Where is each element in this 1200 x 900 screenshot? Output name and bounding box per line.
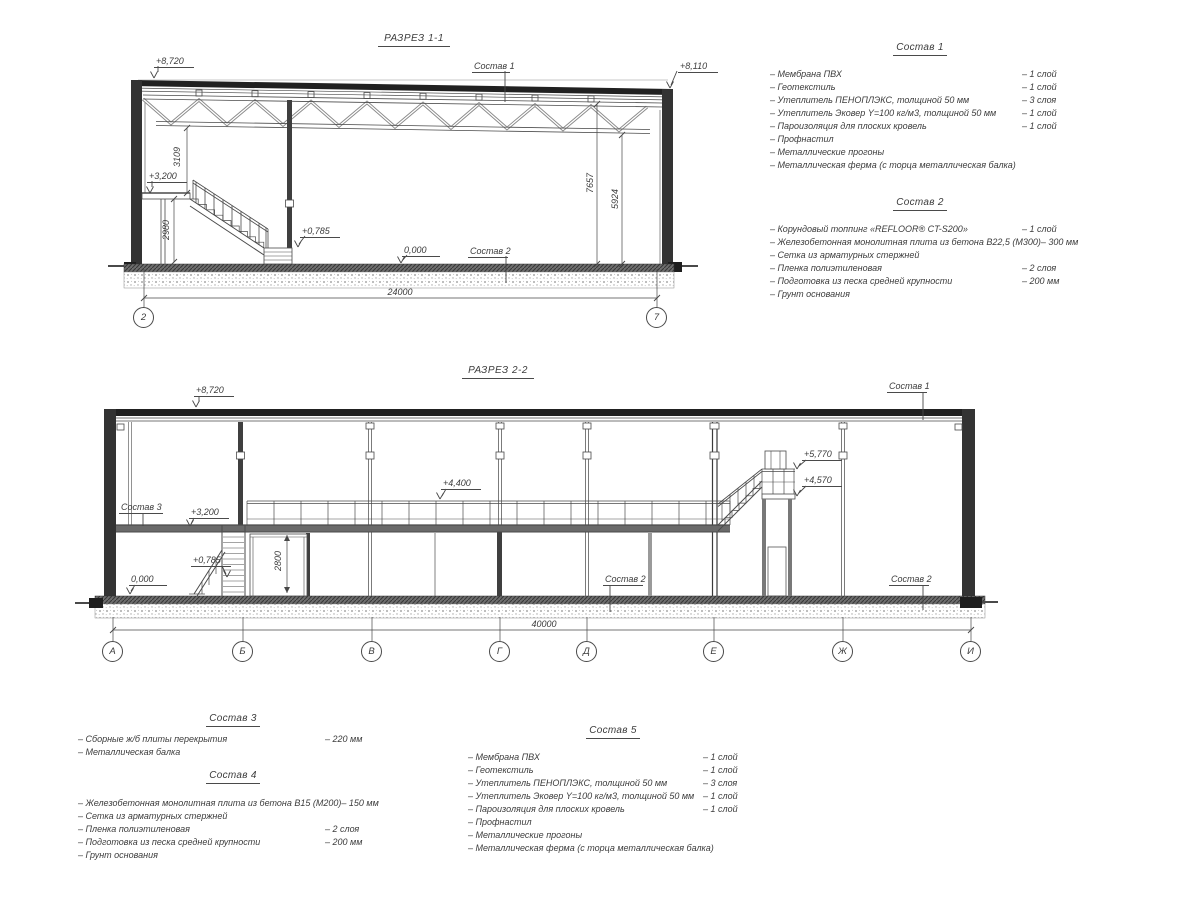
axis-bubble-zh: Ж	[832, 641, 853, 662]
legend-title: Состав 2	[770, 197, 1070, 208]
elevation-mark-0000-s2: 0,000	[129, 574, 167, 586]
sostav3-callout-s2: Состав 3	[119, 502, 163, 514]
axis-bubble-2: 2	[133, 307, 154, 328]
elevation-mark-5770-s2: +5,770	[802, 449, 842, 461]
legend-item: – Грунт основания	[78, 849, 388, 862]
legend-title: Состав 1	[770, 42, 1070, 53]
legend-sostav-1: Состав 1 – Мембрана ПВХ– 1 слой – Геотек…	[770, 42, 1070, 172]
elevation-mark-8110-s1: +8,110	[678, 61, 718, 73]
sostav2-callout-s1: Состав 2	[468, 246, 508, 258]
axis-bubble-b: Б	[232, 641, 253, 662]
dim-2800: 2800	[273, 551, 283, 571]
legend-item: – Грунт основания	[770, 288, 1070, 301]
legend-item: – Металлическая ферма (с торца металличе…	[468, 842, 758, 855]
legend-item: – Металлическая балка	[78, 746, 388, 759]
legend-item: – Утеплитель Эковер Y=100 кг/м3, толщино…	[468, 790, 758, 803]
legend-item: – Металлические прогоны	[770, 146, 1070, 159]
elevation-mark-8720-s1: +8,720	[154, 56, 194, 68]
legend-item: – Утеплитель Эковер Y=100 кг/м3, толщино…	[770, 107, 1070, 120]
legend-item: – Профнастил	[770, 133, 1070, 146]
legend-item: – Утеплитель ПЕНОПЛЭКС, толщиной 50 мм– …	[468, 777, 758, 790]
dim-7657: 7657	[585, 173, 595, 193]
sostav2-callout-right-s2: Состав 2	[889, 574, 929, 586]
legend-item: – Железобетонная монолитная плита из бет…	[78, 797, 388, 810]
dim-3109: 3109	[172, 147, 182, 167]
legend-item: – Сетка из арматурных стержней	[770, 249, 1070, 262]
legend-item: – Геотекстиль– 1 слой	[770, 81, 1070, 94]
legend-item: – Утеплитель ПЕНОПЛЭКС, толщиной 50 мм– …	[770, 94, 1070, 107]
legend-sostav-4: Состав 4 – Железобетонная монолитная пли…	[78, 770, 388, 862]
elevation-mark-3200-s2: +3,200	[189, 507, 229, 519]
axis-bubble-7: 7	[646, 307, 667, 328]
dim-5924: 5924	[610, 189, 620, 209]
legend-item: – Профнастил	[468, 816, 758, 829]
elevation-mark-0785-s1: +0,785	[300, 226, 340, 238]
legend-item: – Пленка полиэтиленовая– 2 слоя	[770, 262, 1070, 275]
dim-24000: 24000	[375, 287, 425, 297]
drawing-canvas: РАЗРЕЗ 1-1 +8,720 Состав 1 +8,110 +3,200…	[0, 0, 1200, 900]
legend-item: – Мембрана ПВХ– 1 слой	[468, 751, 758, 764]
legend-title: Состав 4	[78, 770, 388, 781]
axis-bubble-d: Д	[576, 641, 597, 662]
legend-title: Состав 3	[78, 713, 388, 724]
legend-sostav-2: Состав 2 – Корундовый топпинг «REFLOOR® …	[770, 197, 1070, 301]
legend-item: – Подготовка из песка средней крупности–…	[78, 836, 388, 849]
axis-bubble-e: Е	[703, 641, 724, 662]
elevation-mark-4400-s2: +4,400	[441, 478, 481, 490]
dim-40000: 40000	[518, 619, 570, 629]
legend-item: – Металлическая ферма (с торца металличе…	[770, 159, 1070, 172]
sostav2-callout-mid-s2: Состав 2	[603, 574, 643, 586]
legend-sostav-5: Состав 5 – Мембрана ПВХ– 1 слой – Геотек…	[468, 725, 758, 855]
legend-item: – Подготовка из песка средней крупности–…	[770, 275, 1070, 288]
legend-item: – Сборные ж/б плиты перекрытия– 220 мм	[78, 733, 388, 746]
elevation-mark-0785-s2: +0,785	[191, 555, 231, 567]
legend-item: – Пароизоляция для плоских кровель– 1 сл…	[468, 803, 758, 816]
legend-item: – Сетка из арматурных стержней	[78, 810, 388, 823]
elevation-mark-4570-s2: +4,570	[802, 475, 842, 487]
section1-title: РАЗРЕЗ 1-1	[378, 34, 450, 47]
legend-item: – Геотекстиль– 1 слой	[468, 764, 758, 777]
legend-item: – Железобетонная монолитная плита из бет…	[770, 236, 1070, 249]
legend-item: – Пленка полиэтиленовая– 2 слоя	[78, 823, 388, 836]
elevation-mark-8720-s2: +8,720	[194, 385, 234, 397]
legend-title: Состав 5	[468, 725, 758, 736]
axis-bubble-a: А	[102, 641, 123, 662]
legend-item: – Мембрана ПВХ– 1 слой	[770, 68, 1070, 81]
axis-bubble-g: Г	[489, 641, 510, 662]
legend-item: – Пароизоляция для плоских кровель– 1 сл…	[770, 120, 1070, 133]
elevation-mark-3200-s1: +3,200	[147, 171, 187, 183]
legend-item: – Корундовый топпинг «REFLOOR® CT-S200»–…	[770, 223, 1070, 236]
sostav1-callout-s1: Состав 1	[472, 61, 510, 73]
axis-bubble-v: В	[361, 641, 382, 662]
elevation-mark-0000-s1: 0,000	[402, 245, 440, 257]
legend-sostav-3: Состав 3 – Сборные ж/б плиты перекрытия–…	[78, 713, 388, 759]
section2-title: РАЗРЕЗ 2-2	[462, 366, 534, 379]
axis-bubble-i: И	[960, 641, 981, 662]
sostav1-callout-s2: Состав 1	[887, 381, 927, 393]
legend-item: – Металлические прогоны	[468, 829, 758, 842]
dim-2980: 2980	[161, 220, 171, 240]
